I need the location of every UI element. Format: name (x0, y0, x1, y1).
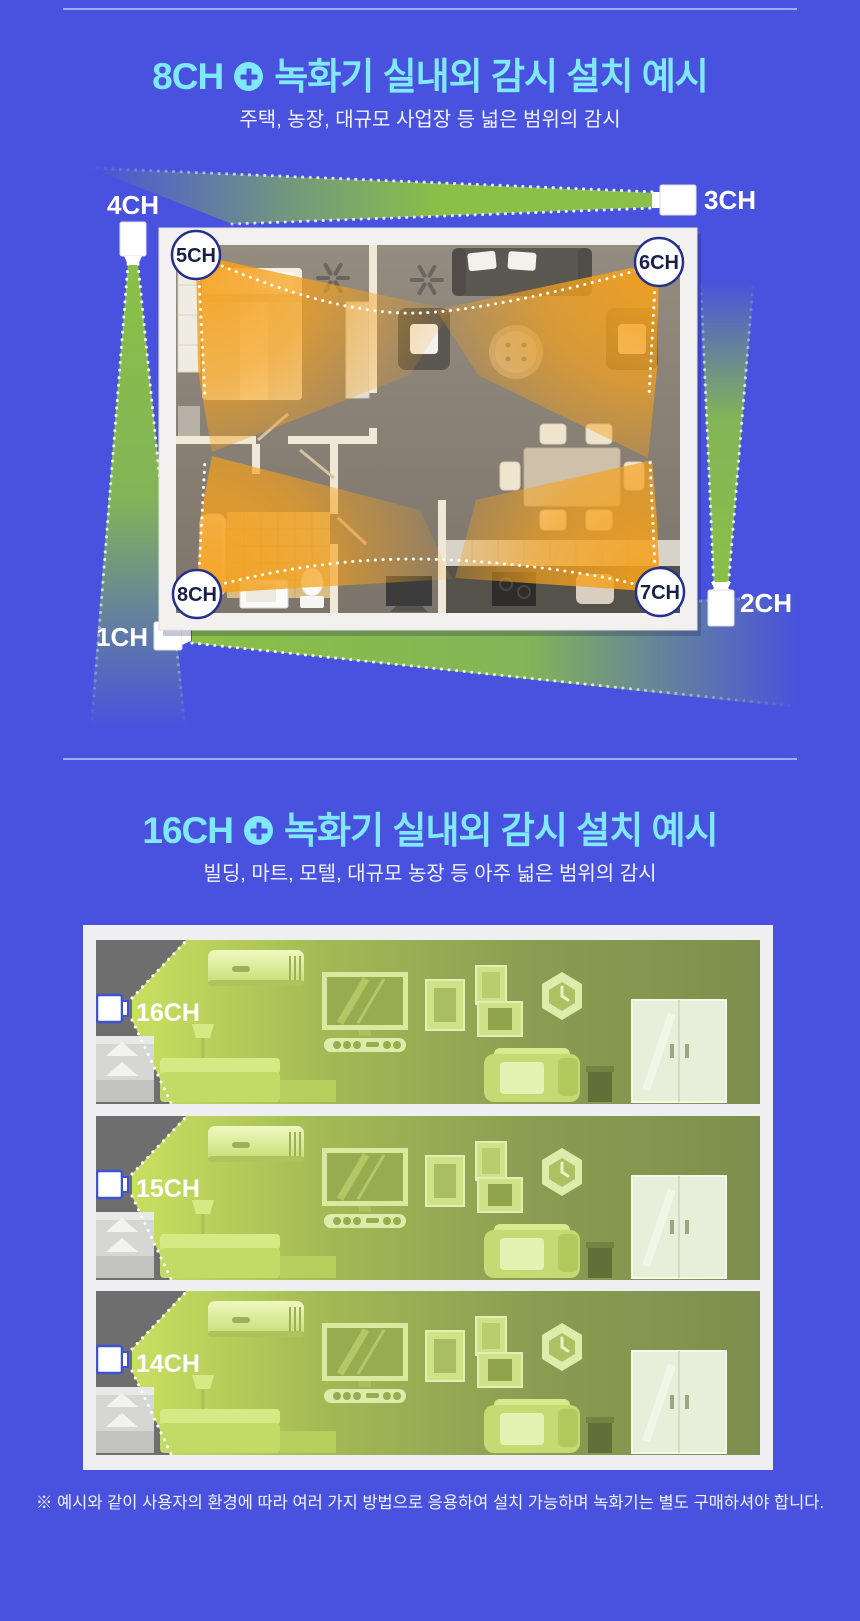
camera-1ch-label: 1CH (96, 622, 148, 652)
rooms-frame: 16CH 15CH 14CH (83, 925, 773, 1470)
badge-8ch: 8CH (173, 570, 221, 618)
section-16ch-subtitle: 빌딩, 마트, 모텔, 대규모 농장 등 아주 넓은 범위의 감시 (0, 857, 860, 886)
camera-2ch-label: 2CH (740, 588, 792, 618)
room-16ch-label: 16CH (136, 999, 200, 1027)
floorplan-diagram: 4CH 3CH 2CH 1CH (0, 160, 860, 735)
camera-4ch-label: 4CH (107, 190, 159, 220)
badge-7ch: 7CH (636, 568, 684, 616)
room-16ch: 16CH (96, 940, 760, 1104)
section-16ch-channel: 16CH (142, 812, 233, 849)
section-8ch-subtitle: 주택, 농장, 대규모 사업장 등 넓은 범위의 감시 (0, 103, 860, 132)
top-divider (63, 8, 797, 10)
plus-icon (234, 62, 263, 91)
section-8ch-title: 8CH 녹화기 실내외 감시 설치 예시 (0, 58, 860, 95)
badge-6ch: 6CH (635, 238, 683, 286)
room-15ch: 15CH (96, 1116, 760, 1280)
section-divider (63, 758, 797, 760)
footer-note: ※ 예시와 같이 사용자의 환경에 따라 여러 가지 방법으로 응용하여 설치 … (0, 1489, 860, 1513)
badge-5ch-label: 5CH (176, 245, 216, 267)
camera-3ch-label: 3CH (704, 185, 756, 215)
room-14ch: 14CH (96, 1291, 760, 1455)
camera-2ch-icon (708, 582, 734, 626)
section-16ch-title-text: 녹화기 실내외 감시 설치 예시 (284, 812, 718, 849)
badge-8ch-label: 8CH (177, 584, 217, 606)
camera-4ch-icon (120, 222, 146, 265)
badge-6ch-label: 6CH (639, 252, 679, 274)
badge-7ch-label: 7CH (640, 582, 680, 604)
badge-5ch: 5CH (172, 231, 220, 279)
section-8ch-channel: 8CH (152, 58, 223, 95)
plus-icon (244, 816, 273, 845)
camera-3ch-icon (652, 185, 696, 215)
room-14ch-label: 14CH (136, 1350, 200, 1378)
section-8ch-title-text: 녹화기 실내외 감시 설치 예시 (274, 58, 708, 95)
room-15ch-label: 15CH (136, 1175, 200, 1203)
section-16ch-title: 16CH 녹화기 실내외 감시 설치 예시 (0, 812, 860, 849)
beam-3ch (90, 168, 658, 224)
promo-page: 8CH 녹화기 실내외 감시 설치 예시 주택, 농장, 대규모 사업장 등 넓… (0, 0, 860, 1621)
beam-2ch (700, 282, 754, 590)
floor-plan: 5CH 6CH 7CH 8CH (159, 228, 701, 636)
